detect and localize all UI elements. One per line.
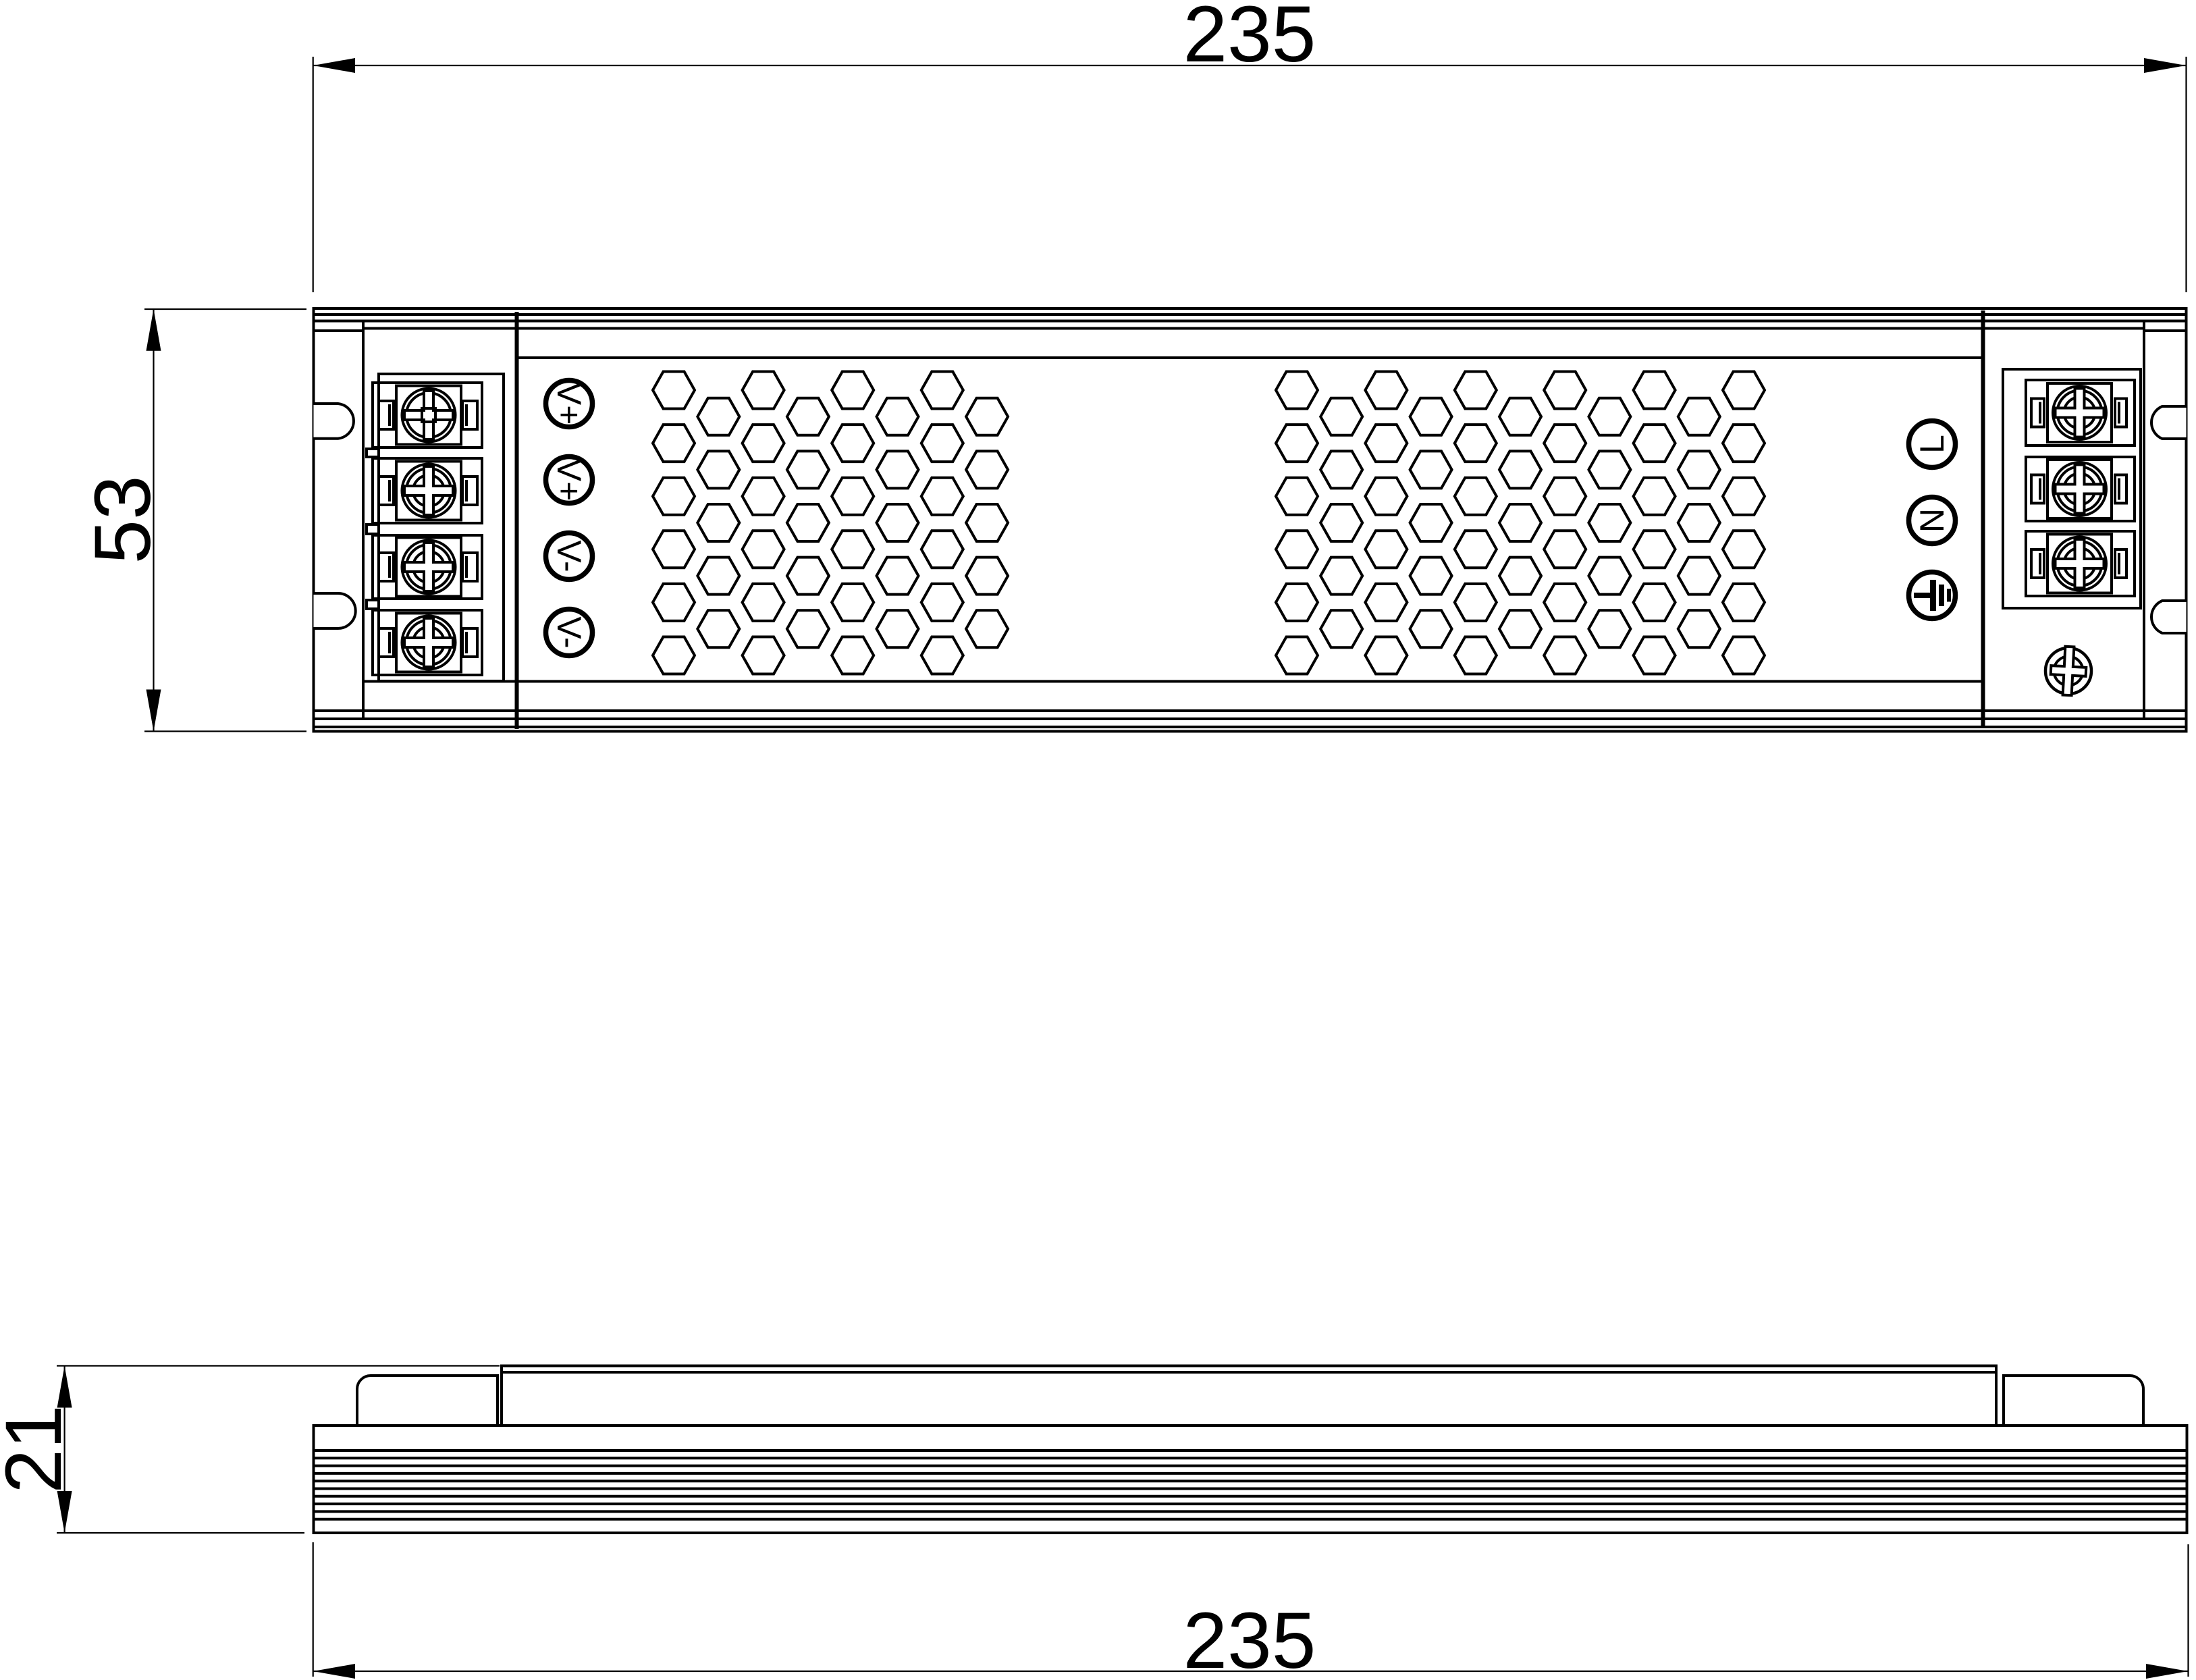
svg-text:N: N bbox=[1913, 508, 1951, 533]
svg-text:235: 235 bbox=[1183, 1596, 1316, 1680]
svg-text:V+: V+ bbox=[550, 383, 588, 425]
svg-text:21: 21 bbox=[0, 1405, 78, 1493]
svg-text:L: L bbox=[1913, 435, 1951, 454]
svg-text:V-: V- bbox=[550, 616, 588, 648]
svg-text:53: 53 bbox=[78, 475, 167, 564]
svg-text:235: 235 bbox=[1183, 0, 1316, 79]
svg-text:V+: V+ bbox=[550, 459, 588, 502]
svg-text:V-: V- bbox=[550, 540, 588, 572]
